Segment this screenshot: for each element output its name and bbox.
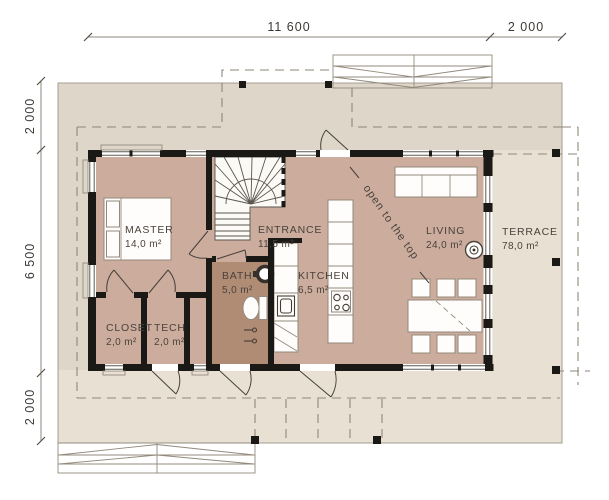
kitchen-area: 6,5 m² xyxy=(298,285,329,296)
dim-top-main: 11 600 xyxy=(267,20,310,34)
dim-left-top: 2 000 xyxy=(23,98,37,134)
entrance-area: 11,5 m² xyxy=(258,239,294,250)
fireplace-icon xyxy=(466,242,483,259)
steps-bottom xyxy=(58,443,255,473)
living-area: 24,0 m² xyxy=(426,240,463,251)
tech-name: TECH xyxy=(154,322,186,334)
terrace-area: 78,0 m² xyxy=(502,241,539,252)
toilet-icon xyxy=(243,297,267,320)
utility-cabinet-icon xyxy=(274,243,298,352)
closet-name: CLOSET xyxy=(106,322,153,334)
tech-area: 2,0 m² xyxy=(154,337,185,348)
bath-area: 5,0 m² xyxy=(222,285,253,296)
dim-left-mid: 6 500 xyxy=(23,243,37,279)
wall-bath-right xyxy=(268,243,274,364)
kitchen-name: KITCHEN xyxy=(298,270,350,282)
master-area: 14,0 m² xyxy=(125,239,162,250)
closet-area: 2,0 m² xyxy=(106,337,137,348)
floor-plan-page: 11 600 2 000 2 000 6 500 2 000 MASTER 14… xyxy=(0,0,609,500)
stair-floor-lower xyxy=(215,207,250,240)
bath-name: BATH xyxy=(222,270,252,282)
terrace-deck-bottom xyxy=(58,370,562,443)
terrace-name: TERRACE xyxy=(502,226,558,238)
dim-left-bottom: 2 000 xyxy=(23,389,37,425)
sofa-icon xyxy=(395,167,477,197)
dim-top-terrace: 2 000 xyxy=(508,20,544,34)
floor-plan-drawing: 11 600 2 000 2 000 6 500 2 000 MASTER 14… xyxy=(0,0,609,500)
dining-table-icon xyxy=(408,279,482,353)
entrance-name: ENTRANCE xyxy=(258,224,322,236)
wall-bath-left xyxy=(206,258,212,364)
wall-master xyxy=(206,157,212,230)
living-name: LIVING xyxy=(426,225,465,237)
master-name: MASTER xyxy=(125,224,174,236)
